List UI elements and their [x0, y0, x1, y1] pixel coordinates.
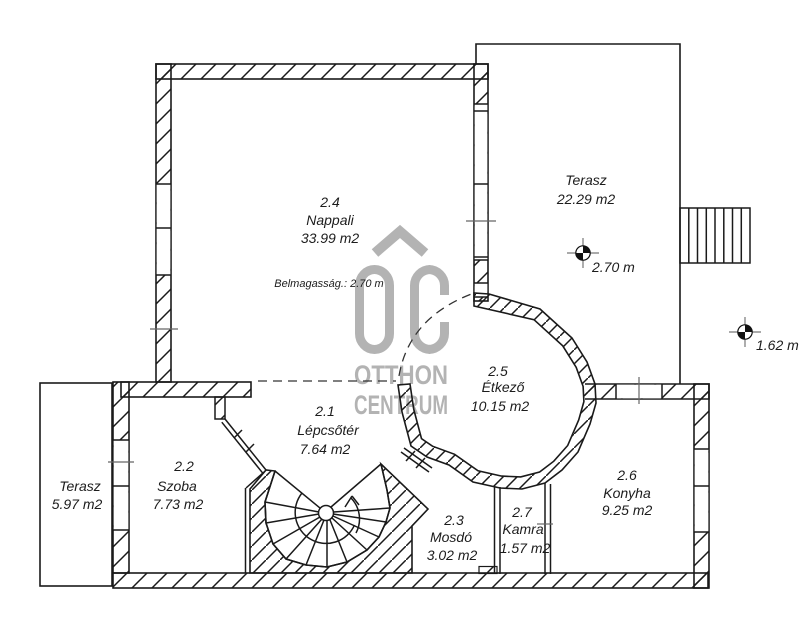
svg-text:Nappali: Nappali	[306, 212, 354, 228]
svg-text:9.25 m2: 9.25 m2	[602, 502, 653, 518]
svg-text:2.3: 2.3	[443, 512, 464, 528]
svg-text:5.97 m2: 5.97 m2	[52, 496, 103, 512]
svg-text:22.29 m2: 22.29 m2	[556, 191, 616, 207]
svg-text:Belmagasság.: 2.70 m: Belmagasság.: 2.70 m	[274, 278, 383, 290]
svg-text:Konyha: Konyha	[603, 485, 651, 501]
svg-text:2.70 m: 2.70 m	[591, 259, 635, 275]
svg-text:2.7: 2.7	[511, 504, 533, 520]
svg-text:10.15 m2: 10.15 m2	[471, 398, 530, 414]
svg-text:7.73 m2: 7.73 m2	[153, 496, 204, 512]
svg-text:3.02 m2: 3.02 m2	[427, 547, 478, 563]
svg-text:2.6: 2.6	[616, 467, 637, 483]
svg-text:Lépcsőtér: Lépcsőtér	[297, 422, 360, 438]
svg-text:Szoba: Szoba	[157, 478, 197, 494]
svg-text:2.2: 2.2	[173, 458, 194, 474]
svg-text:1.62 m: 1.62 m	[756, 337, 799, 353]
svg-text:7.64 m2: 7.64 m2	[300, 441, 351, 457]
svg-text:2.1: 2.1	[314, 403, 334, 419]
svg-text:2.4: 2.4	[319, 194, 340, 210]
svg-text:Étkező: Étkező	[482, 379, 525, 395]
svg-text:33.99 m2: 33.99 m2	[301, 230, 360, 246]
svg-text:Terasz: Terasz	[59, 478, 101, 494]
svg-text:Mosdó: Mosdó	[430, 529, 472, 545]
svg-text:Kamra: Kamra	[502, 521, 543, 537]
svg-text:2.5: 2.5	[487, 363, 508, 379]
svg-text:1.57 m2: 1.57 m2	[500, 540, 551, 556]
svg-text:Terasz: Terasz	[565, 172, 607, 188]
